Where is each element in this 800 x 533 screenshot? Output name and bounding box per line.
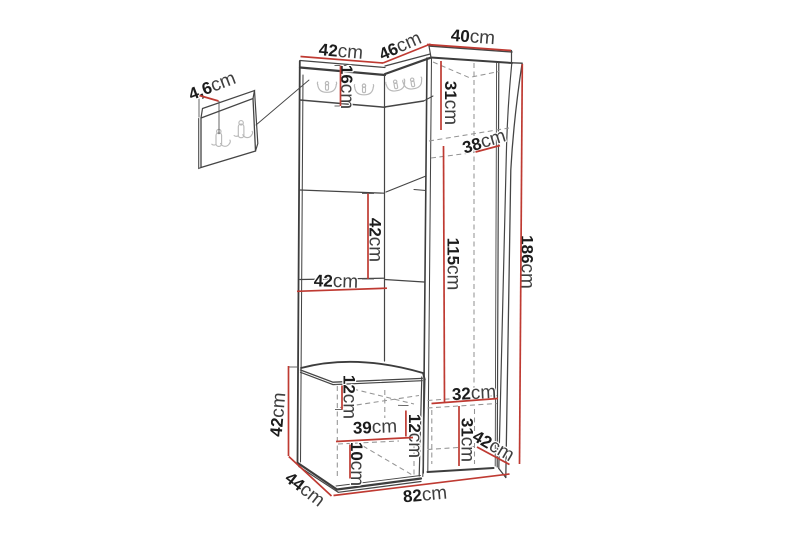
svg-text:186cm: 186cm	[517, 235, 538, 289]
svg-text:39cm: 39cm	[353, 416, 398, 439]
svg-text:12cm: 12cm	[404, 414, 425, 458]
svg-text:115cm: 115cm	[443, 238, 464, 291]
svg-text:31cm: 31cm	[440, 81, 461, 125]
svg-text:16cm: 16cm	[336, 65, 357, 109]
